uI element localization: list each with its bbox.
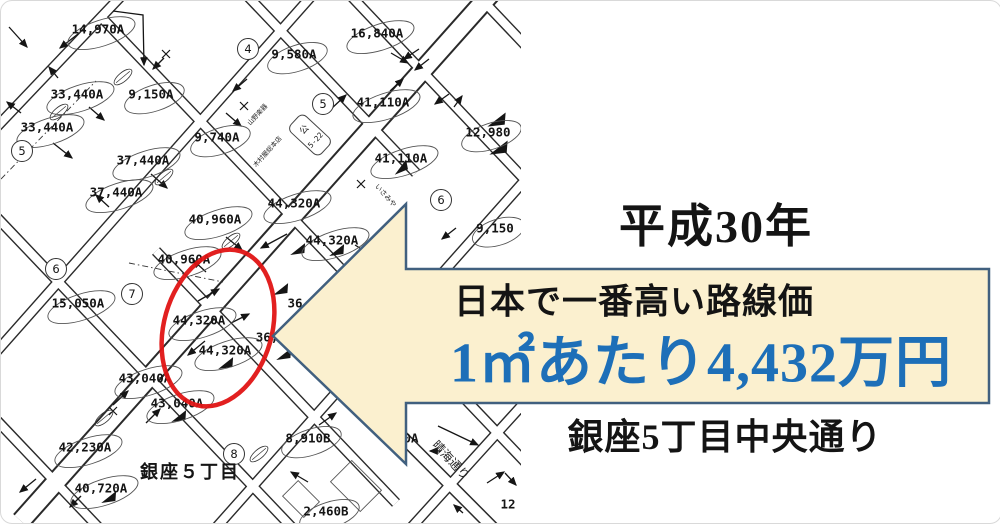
street-name-callout: 銀座5丁目中央通り — [567, 408, 882, 460]
rosenka-map: 14,970A33,440A33,440A9,150A16,840A9,580A… — [1, 1, 521, 523]
district-label: 銀座５丁目 — [140, 461, 240, 483]
block-number: 6 — [437, 193, 444, 207]
price-label: 41,110A — [357, 95, 410, 110]
area-box-outline — [287, 113, 333, 158]
area-box: 公5-22 — [287, 113, 333, 158]
street-name-label: 山野楽器 — [245, 101, 269, 127]
era-year-label: 平成30年 — [619, 190, 813, 256]
price-label: 14,970A — [72, 22, 125, 37]
price-value-label: 1㎡あたり4,432万円 — [450, 318, 952, 399]
price-label: 44,320A — [306, 233, 359, 248]
price-label: 40,960A — [189, 212, 242, 227]
price-label: 16,840A — [351, 26, 404, 41]
price-label: 8,910B — [285, 431, 331, 446]
price-label: 37,440A — [117, 153, 170, 168]
block-number: 6 — [52, 262, 59, 276]
block-number: 8 — [230, 447, 237, 461]
price-label: 44,320A — [268, 196, 321, 211]
block-number: 7 — [128, 287, 135, 301]
street-name-label: いさみや — [373, 183, 398, 209]
block-number: 5 — [18, 144, 25, 158]
price-label: 9,150 — [476, 221, 514, 236]
price-label: 9,740A — [194, 130, 240, 145]
partial-price-label: 36, — [256, 330, 279, 345]
area-box-line1: 公 — [297, 123, 311, 137]
block-number: 4 — [244, 42, 251, 56]
price-label: 12,980 — [465, 125, 510, 140]
partial-price-label: 36 — [287, 296, 302, 311]
price-label: 2,460B — [303, 504, 349, 519]
screenshot-frame: 14,970A33,440A33,440A9,150A16,840A9,580A… — [0, 0, 1000, 524]
price-label: 37,440A — [90, 185, 143, 200]
price-label: 42,230A — [59, 440, 112, 455]
price-label: 40,720A — [75, 481, 128, 496]
price-label: 33,440A — [51, 87, 104, 102]
partial-price-label: 0A — [403, 431, 419, 446]
price-label: 41,110A — [375, 151, 428, 166]
partial-price-label: 12 — [500, 497, 515, 512]
block-number: 5 — [319, 97, 326, 111]
price-label: 9,580A — [271, 47, 317, 62]
price-label: 44,320A — [173, 313, 226, 328]
street-name-label: 木村屋総本店 — [251, 133, 284, 168]
price-label: 9,150A — [128, 87, 174, 102]
area-box-line2: 5-22 — [306, 130, 325, 149]
price-label: 44,320A — [199, 343, 252, 358]
price-label: 33,440A — [21, 120, 74, 135]
price-label: 15,050A — [52, 296, 105, 311]
